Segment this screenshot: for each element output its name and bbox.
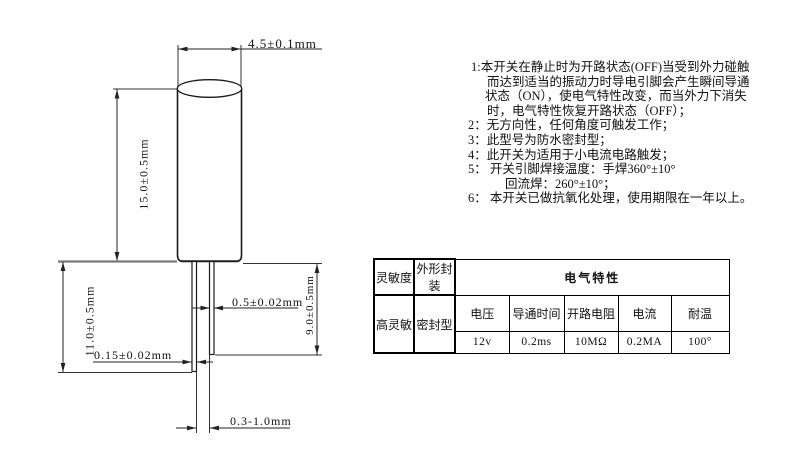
note-line-2: 2：无方向性，任何角度可触发工作； xyxy=(468,118,795,133)
param-header-on-time: 导通时间 xyxy=(509,295,564,331)
note-line-1: 1:本开关在静止时为开路状态(OFF)当受到外力碰触 xyxy=(471,60,795,75)
param-header-open-resistance: 开路电阻 xyxy=(564,295,618,331)
electrical-title-cell: 电气特性 xyxy=(455,259,729,295)
notes-section: 1:本开关在静止时为开路状态(OFF)当受到外力碰触 而达到适当的振动力时导电引… xyxy=(465,60,795,206)
package-header-cell: 外形封装 xyxy=(414,259,455,295)
dim-body-width-label: 4.5±0.1mm xyxy=(248,36,317,52)
note-line-1b: 而达到适当的振动力时导电引脚会产生瞬间导通 xyxy=(487,75,795,90)
spec-table: 灵敏度 外形封装 电气特性 高灵敏 密封型 电压 导通时间 开路电阻 电流 耐温… xyxy=(373,258,730,354)
sensitivity-header-cell: 灵敏度 xyxy=(374,259,414,295)
note-line-3: 3：此型号为防水密封型； xyxy=(468,133,795,148)
note-line-1c: 状态（ON），使电气特性改变，而当外力下消失 xyxy=(485,89,795,104)
dim-lead-right-length-label: 9.0±0.5mm xyxy=(304,275,316,335)
note-line-5b: 回流焊：260°±10°； xyxy=(505,177,795,192)
param-value-voltage: 12v xyxy=(455,331,509,353)
lead-left xyxy=(192,262,197,372)
lead-right xyxy=(210,262,215,355)
dim-body-height-label: 15.0±0.5mm xyxy=(137,138,152,209)
dim-lead-gap-label: 0.3-1.0mm xyxy=(230,414,292,429)
sensitivity-value-cell: 高灵敏 xyxy=(374,295,414,353)
param-value-on-time: 0.2ms xyxy=(509,331,564,353)
note-line-1d: 时，电气特性恢复开路状态（OFF）； xyxy=(487,104,795,119)
dim-lead-left-length-label: 11.0±0.5mm xyxy=(83,286,98,357)
param-value-current: 0.2MA xyxy=(618,331,671,353)
note-line-5: 5： 开关引脚焊接温度：手焊360°±10° xyxy=(468,162,795,177)
dim-lead-thickness-label: 0.15±0.02mm xyxy=(94,348,172,363)
note-line-4: 4：此开关为适用于小电流电路触发； xyxy=(468,148,795,163)
param-header-current: 电流 xyxy=(618,295,671,331)
switch-body xyxy=(178,89,242,262)
param-value-open-resistance: 10MΩ xyxy=(564,331,618,353)
dim-lead-width-label: 0.5±0.02mm xyxy=(232,295,303,310)
param-header-voltage: 电压 xyxy=(455,295,509,331)
switch-top-ellipse xyxy=(177,80,241,98)
datasheet-page: 4.5±0.1mm 15.0±0.5mm 11.0±0.5mm 9.0±0.5m… xyxy=(0,0,800,462)
package-value-cell: 密封型 xyxy=(414,295,455,353)
note-line-6: 6： 本开关已做抗氧化处理，使用期限在一年以上。 xyxy=(468,191,795,206)
param-value-temperature: 100° xyxy=(671,331,729,353)
param-header-temperature: 耐温 xyxy=(671,295,729,331)
